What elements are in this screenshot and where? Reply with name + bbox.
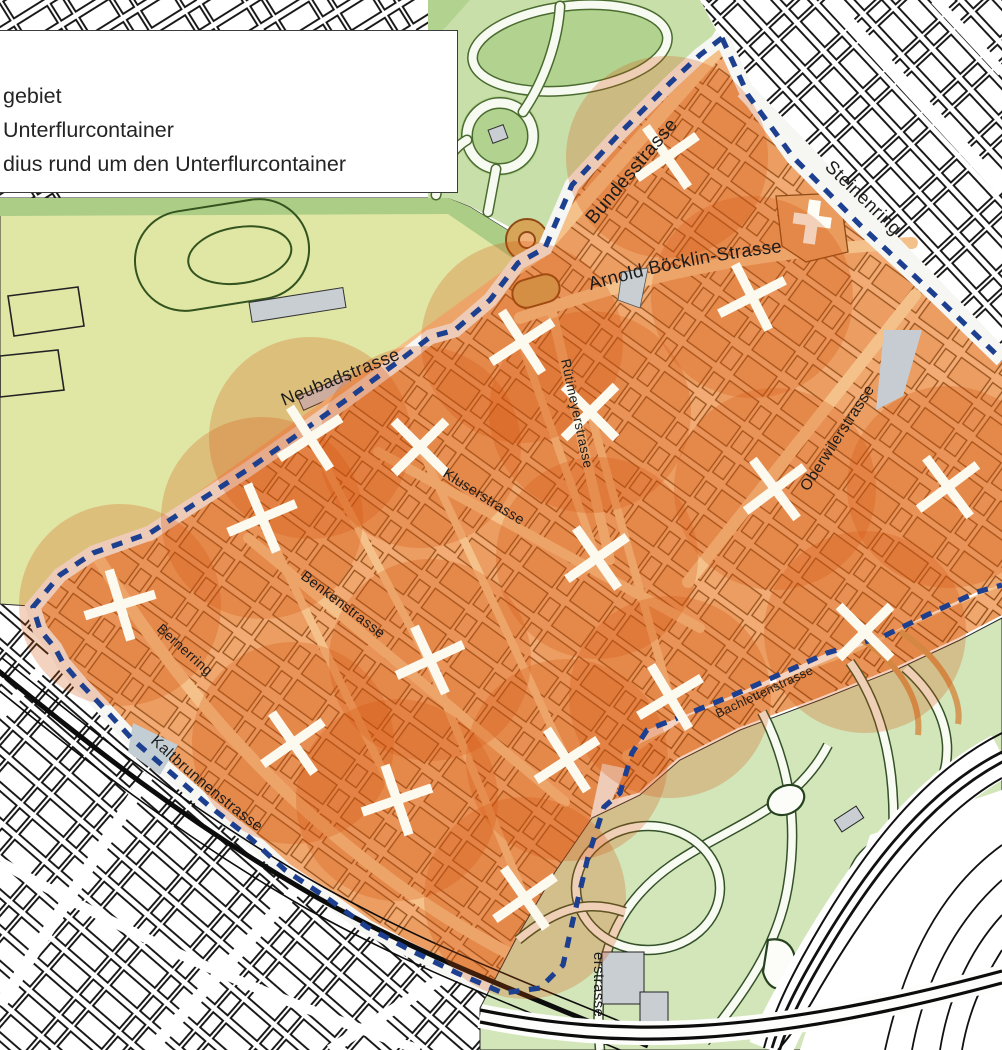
legend-item: Unterflurcontainer (3, 113, 457, 147)
city-top-strip (0, 0, 430, 30)
street-label-erstrasse: erstrasse (590, 952, 607, 1017)
map-screenshot: BundesstrasseSteinenringArnold Böcklin-S… (0, 0, 1002, 1050)
legend-box: gebietUnterflurcontainerdius rund um den… (0, 30, 458, 193)
legend-item: gebiet (3, 79, 457, 113)
legend-item: dius rund um den Unterflurcontainer (3, 147, 457, 181)
